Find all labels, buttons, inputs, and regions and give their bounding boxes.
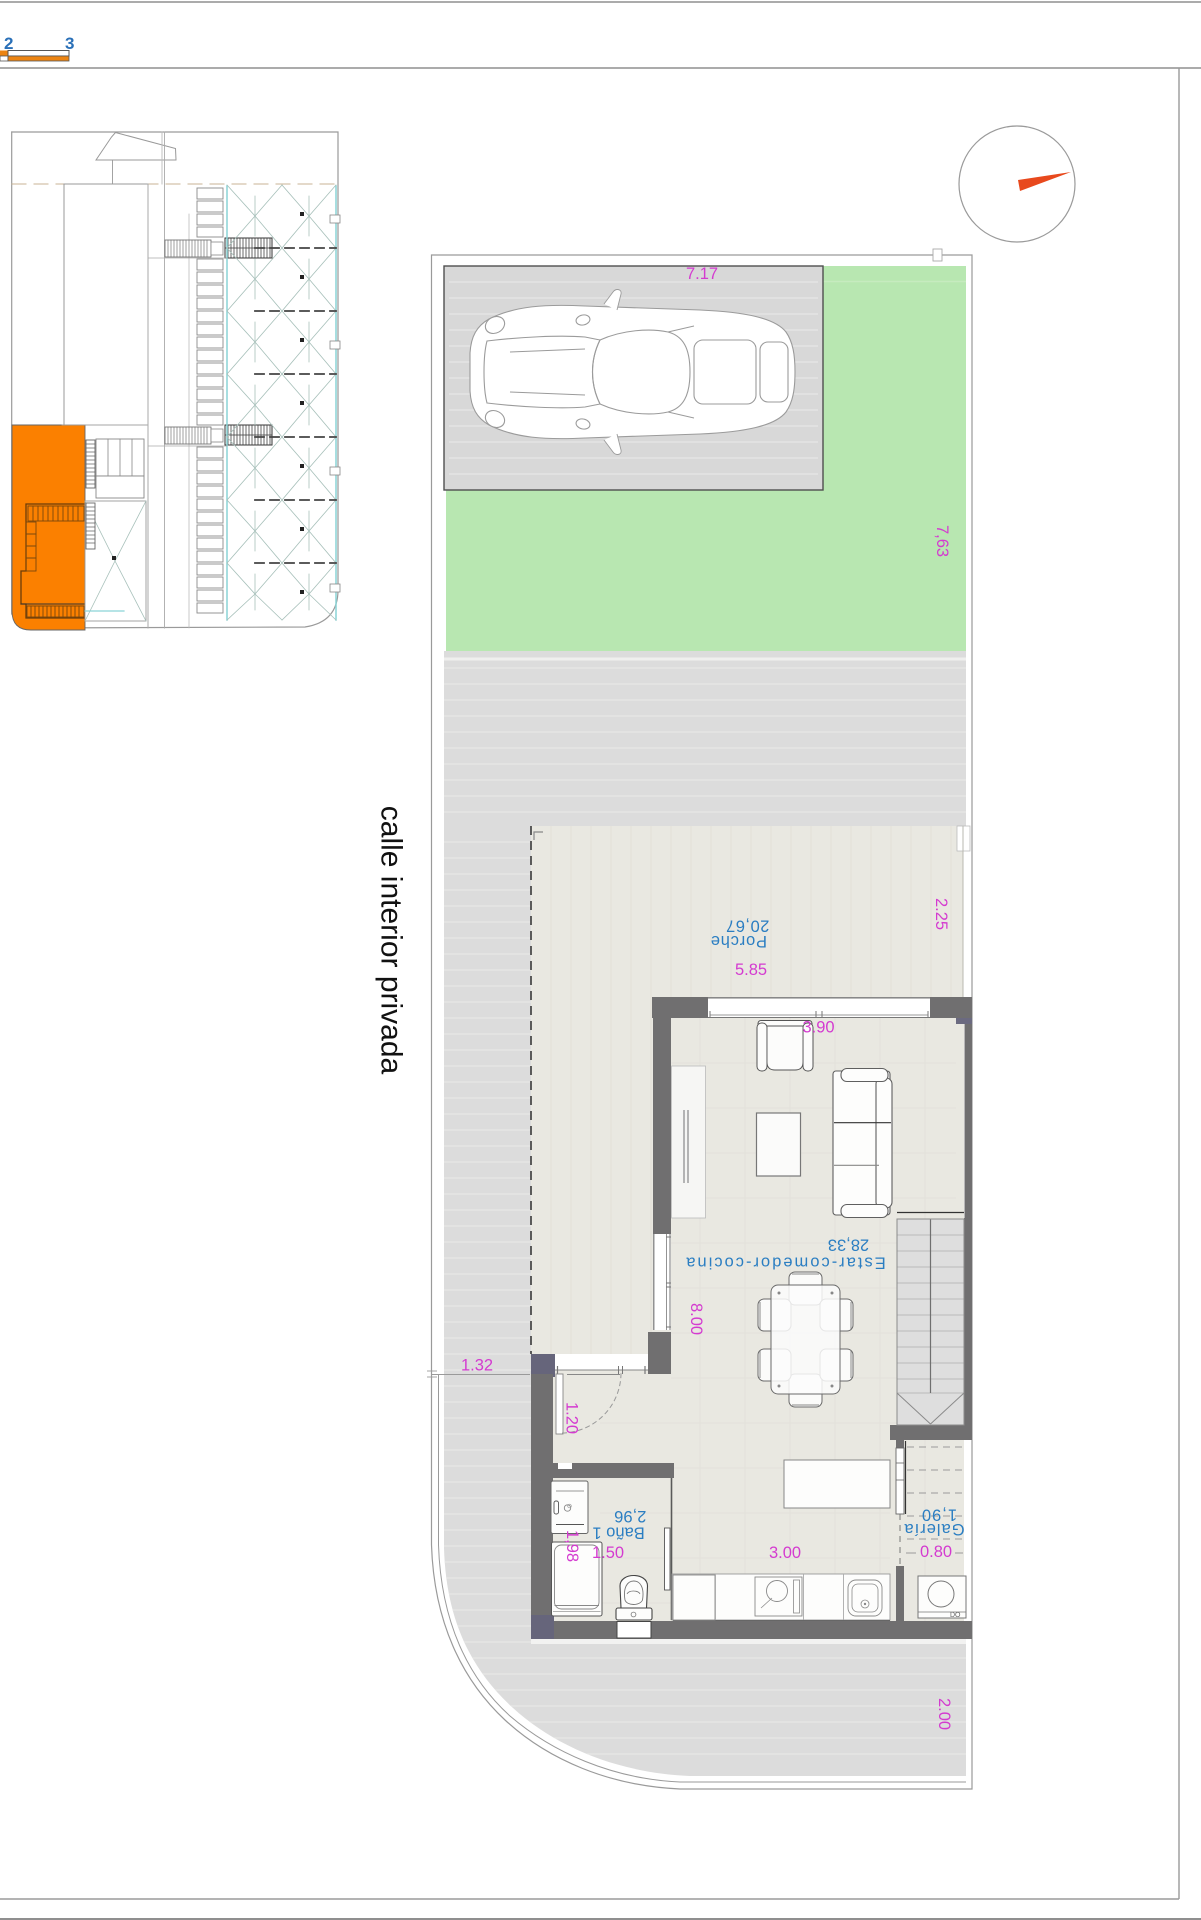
svg-text:1,90: 1,90 bbox=[921, 1506, 957, 1524]
svg-text:1.20: 1.20 bbox=[563, 1402, 581, 1434]
svg-text:1.50: 1.50 bbox=[592, 1544, 624, 1562]
svg-text:3.90: 3.90 bbox=[802, 1019, 834, 1037]
svg-text:1,98: 1,98 bbox=[563, 1530, 581, 1562]
svg-text:DO: DO bbox=[950, 1612, 961, 1619]
svg-text:28,33: 28,33 bbox=[828, 1235, 869, 1253]
svg-text:5.85: 5.85 bbox=[735, 961, 767, 979]
svg-text:3.00: 3.00 bbox=[769, 1544, 801, 1562]
svg-text:8.00: 8.00 bbox=[687, 1303, 705, 1335]
svg-text:Baño 1: Baño 1 bbox=[592, 1524, 644, 1542]
svg-text:2.25: 2.25 bbox=[932, 898, 950, 930]
svg-text:2.00: 2.00 bbox=[935, 1698, 953, 1730]
svg-text:2,96: 2,96 bbox=[614, 1507, 646, 1525]
svg-text:calle interior privada: calle interior privada bbox=[375, 806, 408, 1075]
svg-text:7.17: 7.17 bbox=[686, 265, 718, 283]
svg-text:Estar-comedor-cocina: Estar-comedor-cocina bbox=[684, 1254, 885, 1272]
svg-text:0.80: 0.80 bbox=[920, 1543, 952, 1561]
svg-text:20,67: 20,67 bbox=[726, 916, 770, 934]
svg-text:1.32: 1.32 bbox=[461, 1357, 493, 1375]
svg-text:7,63: 7,63 bbox=[933, 525, 951, 557]
